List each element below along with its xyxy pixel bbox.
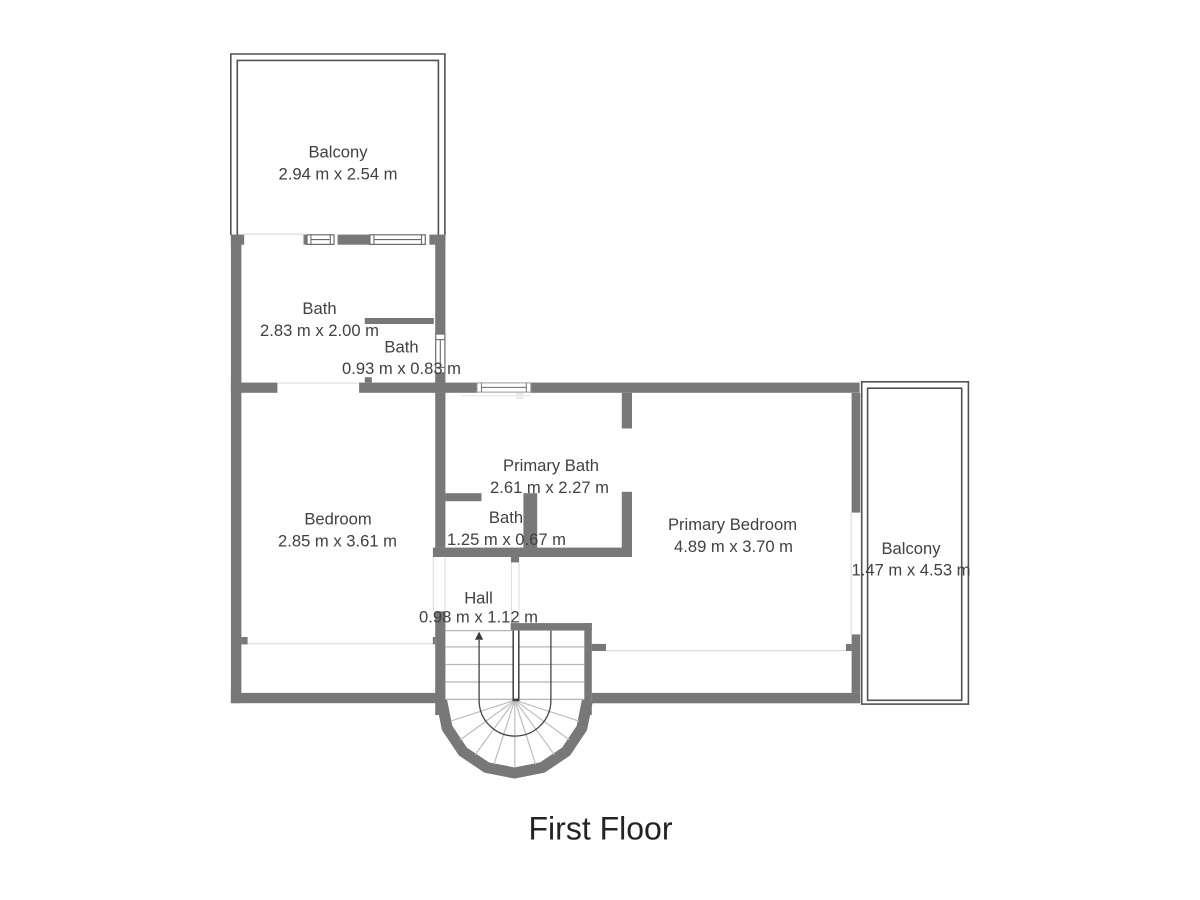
svg-text:1.25 m x 0.67 m: 1.25 m x 0.67 m <box>447 530 566 549</box>
svg-text:1.47 m x 4.53 m: 1.47 m x 4.53 m <box>852 560 971 579</box>
svg-text:2.83 m x 2.00 m: 2.83 m x 2.00 m <box>260 321 379 340</box>
svg-text:Primary Bath: Primary Bath <box>503 456 599 475</box>
svg-text:2.61 m x 2.27 m: 2.61 m x 2.27 m <box>490 478 609 497</box>
svg-text:Hall: Hall <box>464 588 493 607</box>
svg-text:2.85 m x 3.61 m: 2.85 m x 3.61 m <box>278 532 397 551</box>
svg-text:2.94 m x 2.54 m: 2.94 m x 2.54 m <box>279 165 398 184</box>
svg-text:Balcony: Balcony <box>881 539 941 558</box>
svg-text:Balcony: Balcony <box>308 143 368 162</box>
svg-text:4.89 m x 3.70 m: 4.89 m x 3.70 m <box>674 537 793 556</box>
svg-text:Bedroom: Bedroom <box>304 510 371 529</box>
svg-text:Primary Bedroom: Primary Bedroom <box>668 515 797 534</box>
svg-text:0.93 m x 0.83 m: 0.93 m x 0.83 m <box>342 359 461 378</box>
svg-text:Bath: Bath <box>302 299 336 318</box>
svg-text:Bath: Bath <box>489 508 523 527</box>
svg-text:First Floor: First Floor <box>529 811 673 847</box>
svg-text:0.98 m x 1.12 m: 0.98 m x 1.12 m <box>419 608 538 627</box>
svg-text:Bath: Bath <box>384 338 418 357</box>
